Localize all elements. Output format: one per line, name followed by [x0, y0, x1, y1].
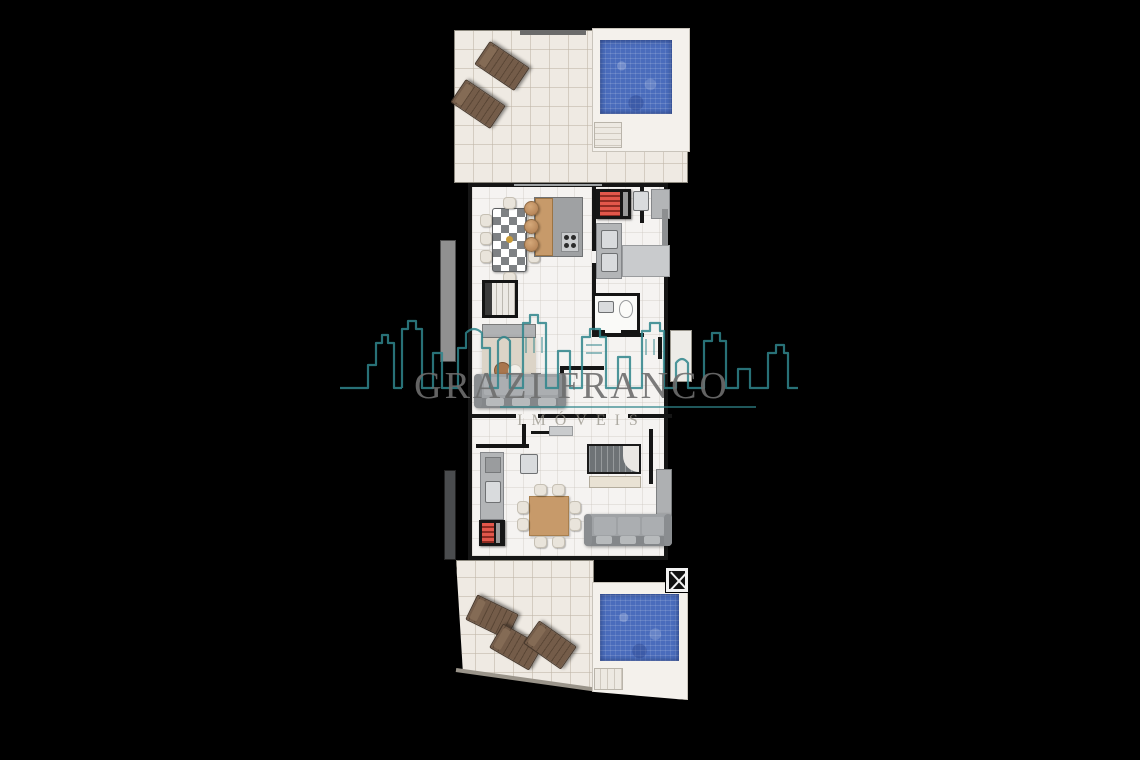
kitchen-counter [622, 245, 670, 277]
dining-table-upper [492, 208, 527, 272]
upper-pool-steps [594, 122, 622, 148]
lower-pool-steps [594, 668, 623, 690]
bar-stool [524, 237, 539, 252]
dining-table-lower [529, 496, 569, 536]
dining-chair [480, 250, 492, 263]
table-centerpiece [506, 236, 513, 243]
sink-counter [596, 223, 622, 279]
kitchen-island [534, 197, 583, 257]
lower-pool-deck [592, 582, 688, 700]
dining-chair [552, 536, 565, 548]
dining-chair [517, 501, 529, 514]
wardrobe [662, 209, 668, 245]
cabinet-lower [589, 476, 641, 488]
staircase-lower [587, 444, 641, 474]
kitchen-sink-small [633, 191, 649, 211]
dining-chair [534, 536, 547, 548]
lower-pool [600, 594, 679, 661]
dining-chair [552, 484, 565, 496]
dining-chair [503, 197, 516, 209]
grill-station-upper [596, 189, 631, 219]
dining-chair [569, 501, 581, 514]
floor-plan-scene: GRAZI FRANCO IMÓVEIS [0, 0, 1140, 760]
dining-chair [517, 518, 529, 531]
glass-slider [514, 184, 602, 186]
watermark-subtitle: IMÓVEIS [452, 412, 712, 430]
dining-chair [534, 484, 547, 496]
dining-chair [480, 214, 492, 227]
bar-stool [524, 201, 539, 216]
upper-pool-deck [592, 28, 690, 152]
laundry-sink [520, 454, 538, 474]
grill-station-lower [479, 520, 505, 546]
sofa-lower [584, 514, 672, 546]
kitchen-counter-lower [480, 452, 504, 520]
watermark-title: GRAZI FRANCO [392, 364, 752, 408]
upper-terrace-edge-wall [520, 30, 586, 35]
dining-chair [569, 518, 581, 531]
upper-pool [600, 40, 672, 114]
side-ledge-left-lower [444, 470, 456, 560]
elevator-shaft-icon [666, 568, 688, 592]
bar-stool [524, 219, 539, 234]
wall [649, 429, 653, 484]
watermark-underline [500, 406, 756, 408]
cooktop [561, 232, 579, 252]
dining-chair [480, 232, 492, 245]
